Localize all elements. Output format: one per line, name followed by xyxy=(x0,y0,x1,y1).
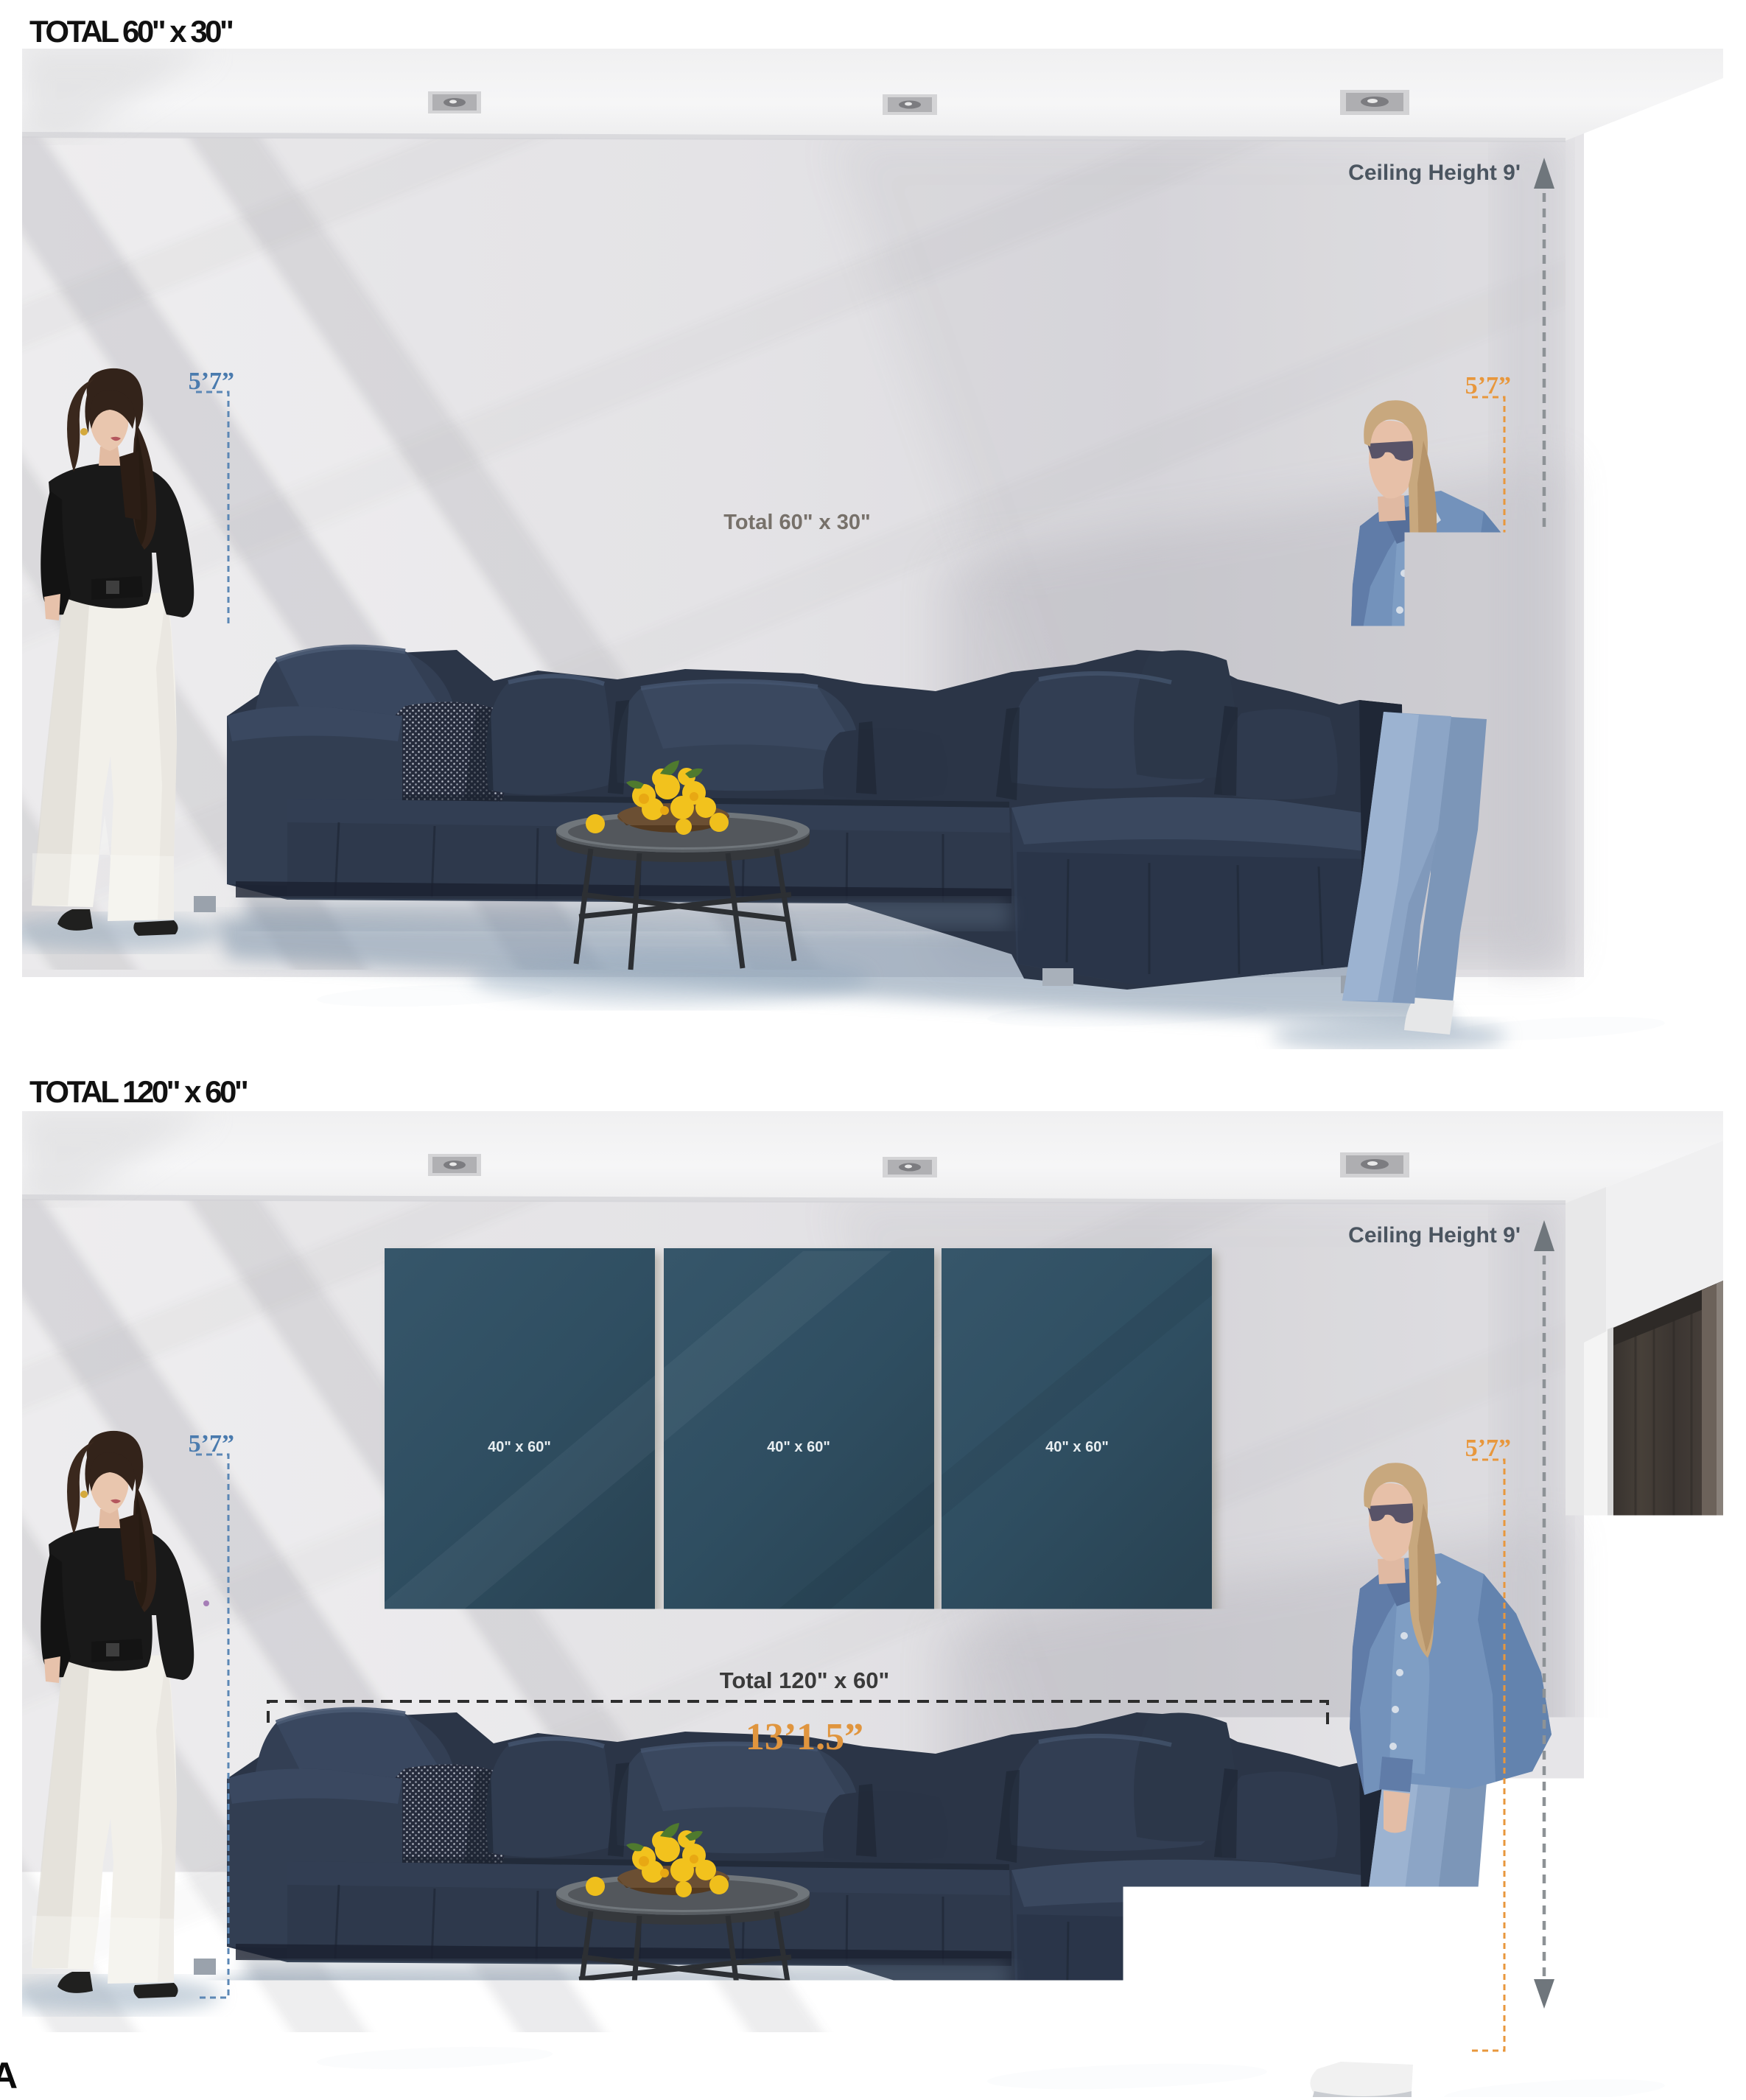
svg-text:Ceiling Height 9': Ceiling Height 9' xyxy=(1348,161,1521,185)
svg-text:5’7”: 5’7” xyxy=(1465,372,1511,399)
svg-text:40" x 60": 40" x 60" xyxy=(1045,1439,1109,1455)
svg-text:5’7”: 5’7” xyxy=(189,1430,234,1457)
svg-text:5’7”: 5’7” xyxy=(1465,1435,1511,1462)
svg-text:13’1.5”: 13’1.5” xyxy=(751,648,869,690)
svg-text:5’7”: 5’7” xyxy=(189,368,234,395)
svg-text:40" x 60": 40" x 60" xyxy=(767,1439,830,1455)
svg-text:13’1.5”: 13’1.5” xyxy=(746,1716,863,1758)
svg-text:Ceiling Height 9': Ceiling Height 9' xyxy=(1348,1223,1521,1247)
svg-text:20" x 30": 20" x 30" xyxy=(908,385,967,400)
svg-text:Total 120" x 60": Total 120" x 60" xyxy=(720,1667,889,1693)
svg-text:40" x 60": 40" x 60" xyxy=(488,1439,551,1455)
svg-text:Total 60" x 30": Total 60" x 30" xyxy=(723,511,870,534)
svg-text:20" x 30": 20" x 30" xyxy=(765,385,824,400)
